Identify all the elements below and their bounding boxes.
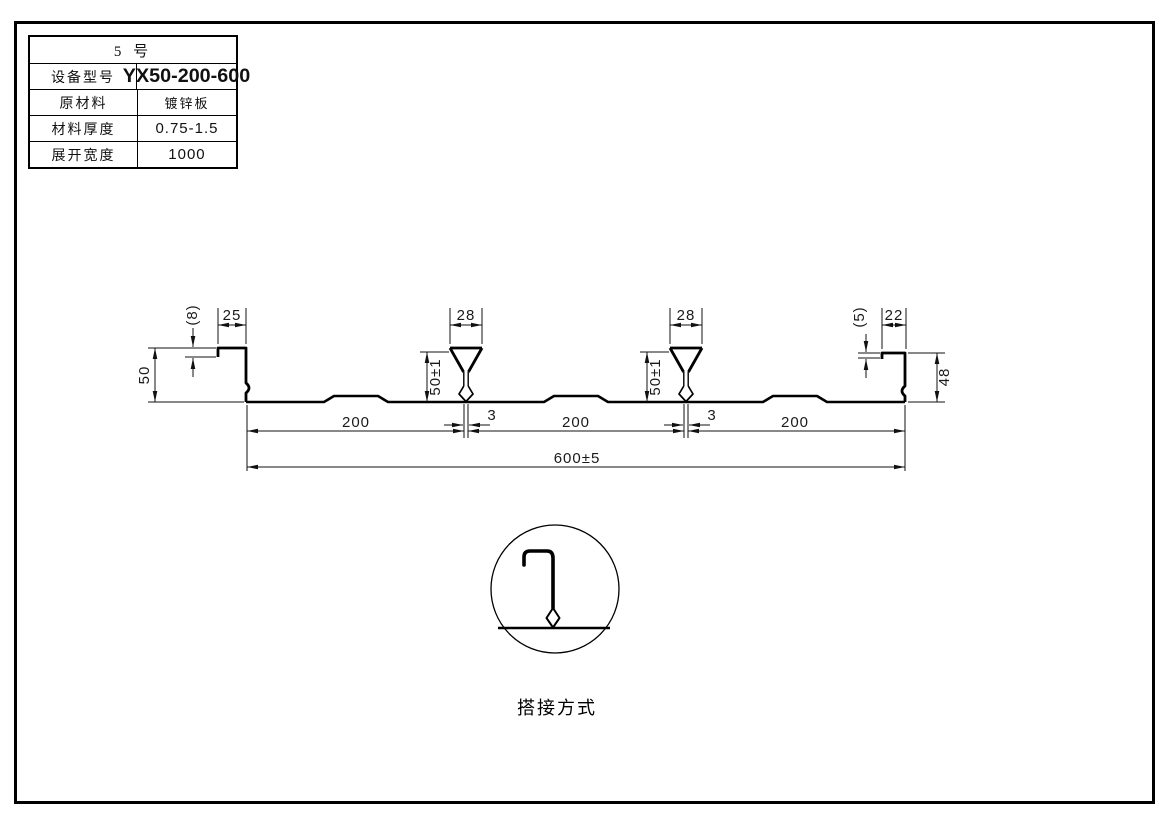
profile-right-upstand <box>882 353 905 402</box>
detail-caption: 搭接方式 <box>477 694 637 720</box>
detail-circle <box>491 525 619 653</box>
dim-right-height: 48 <box>936 368 953 387</box>
dim-rib2-top: 28 <box>677 307 696 324</box>
dim-span2: 200 <box>562 414 590 431</box>
dim-overall: 600±5 <box>554 450 601 467</box>
dim-rib2-height: 50±1 <box>647 358 664 395</box>
detail-diamond <box>547 608 560 628</box>
profile-rib2 <box>670 348 702 402</box>
dim-rib1-slot: 3 <box>487 407 496 424</box>
dim-span3: 200 <box>781 414 809 431</box>
dim-rib1-height: 50±1 <box>427 358 444 395</box>
dim-rib1-top: 28 <box>457 307 476 324</box>
dim-right-top: 22 <box>885 307 904 324</box>
lap-joint-detail <box>491 525 619 653</box>
dimension-lines <box>155 325 937 467</box>
dim-left-lip: (8) <box>184 304 201 325</box>
dim-left-top: 25 <box>223 307 242 324</box>
profile-rib1 <box>450 348 482 402</box>
extension-lines <box>148 308 945 471</box>
profile-outline <box>218 348 905 402</box>
profile-left-upstand <box>218 348 249 402</box>
dim-rib2-slot: 3 <box>707 407 716 424</box>
detail-hook <box>524 551 553 608</box>
dimension-texts: 50 (8) 25 28 28 50±1 50±1 3 3 22 (5) 48 … <box>136 304 953 467</box>
dim-left-height: 50 <box>136 366 153 385</box>
dim-right-lip: (5) <box>851 306 868 327</box>
profile-baseline <box>246 396 905 402</box>
dim-span1: 200 <box>342 414 370 431</box>
